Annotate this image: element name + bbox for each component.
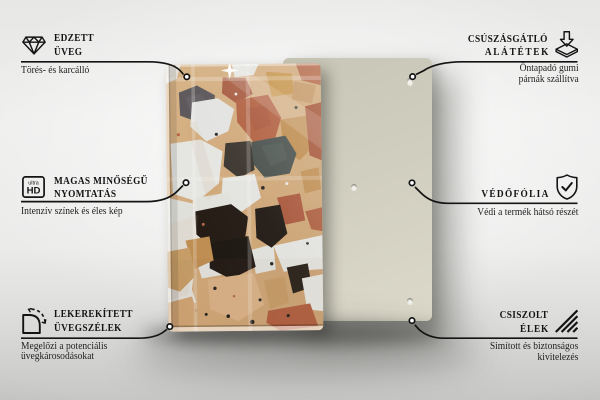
svg-text:HD: HD [27, 186, 41, 197]
